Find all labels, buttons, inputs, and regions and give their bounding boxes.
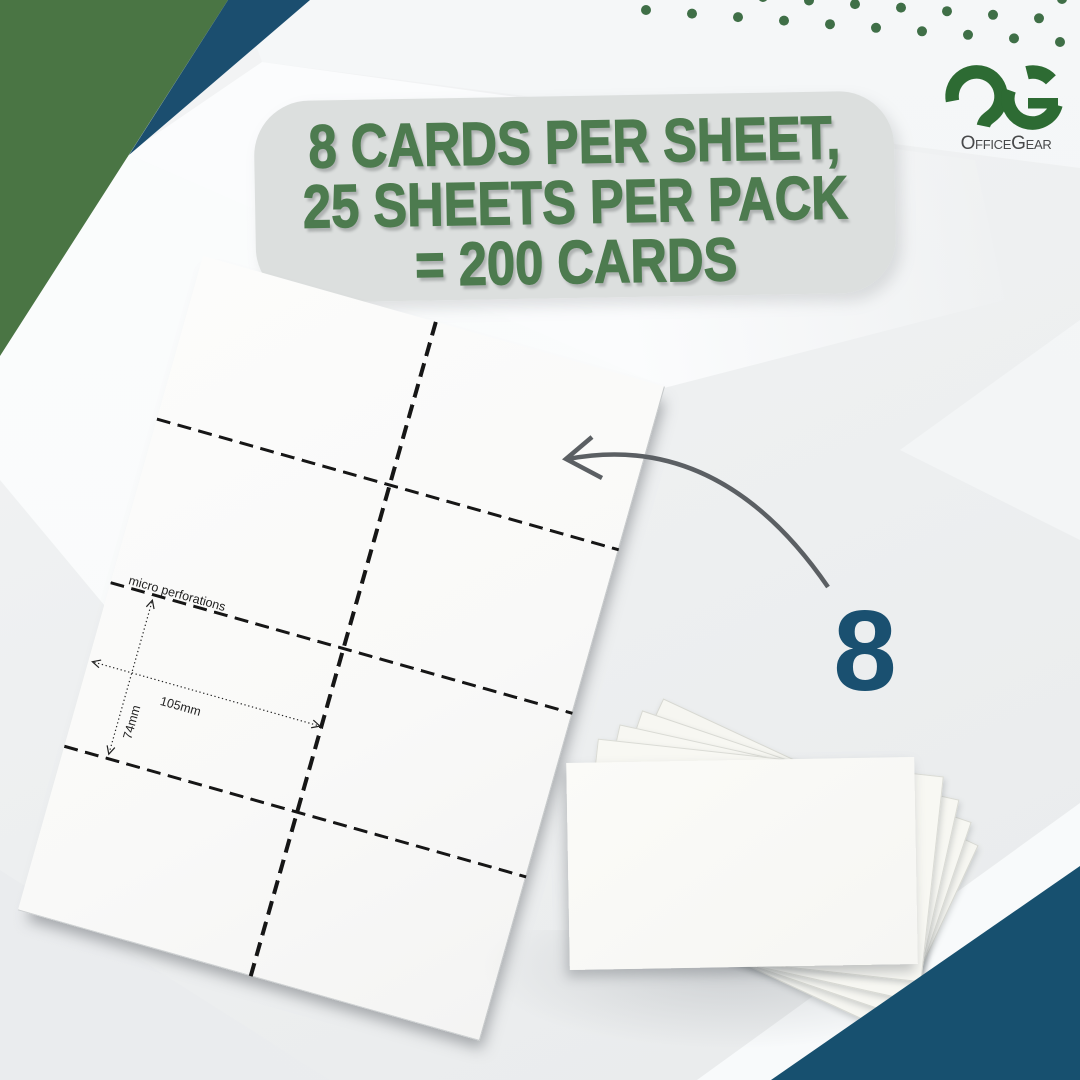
svg-text:74mm: 74mm <box>120 704 143 741</box>
svg-text:OfficeGear: OfficeGear <box>961 133 1052 154</box>
svg-text:105mm: 105mm <box>159 694 203 719</box>
